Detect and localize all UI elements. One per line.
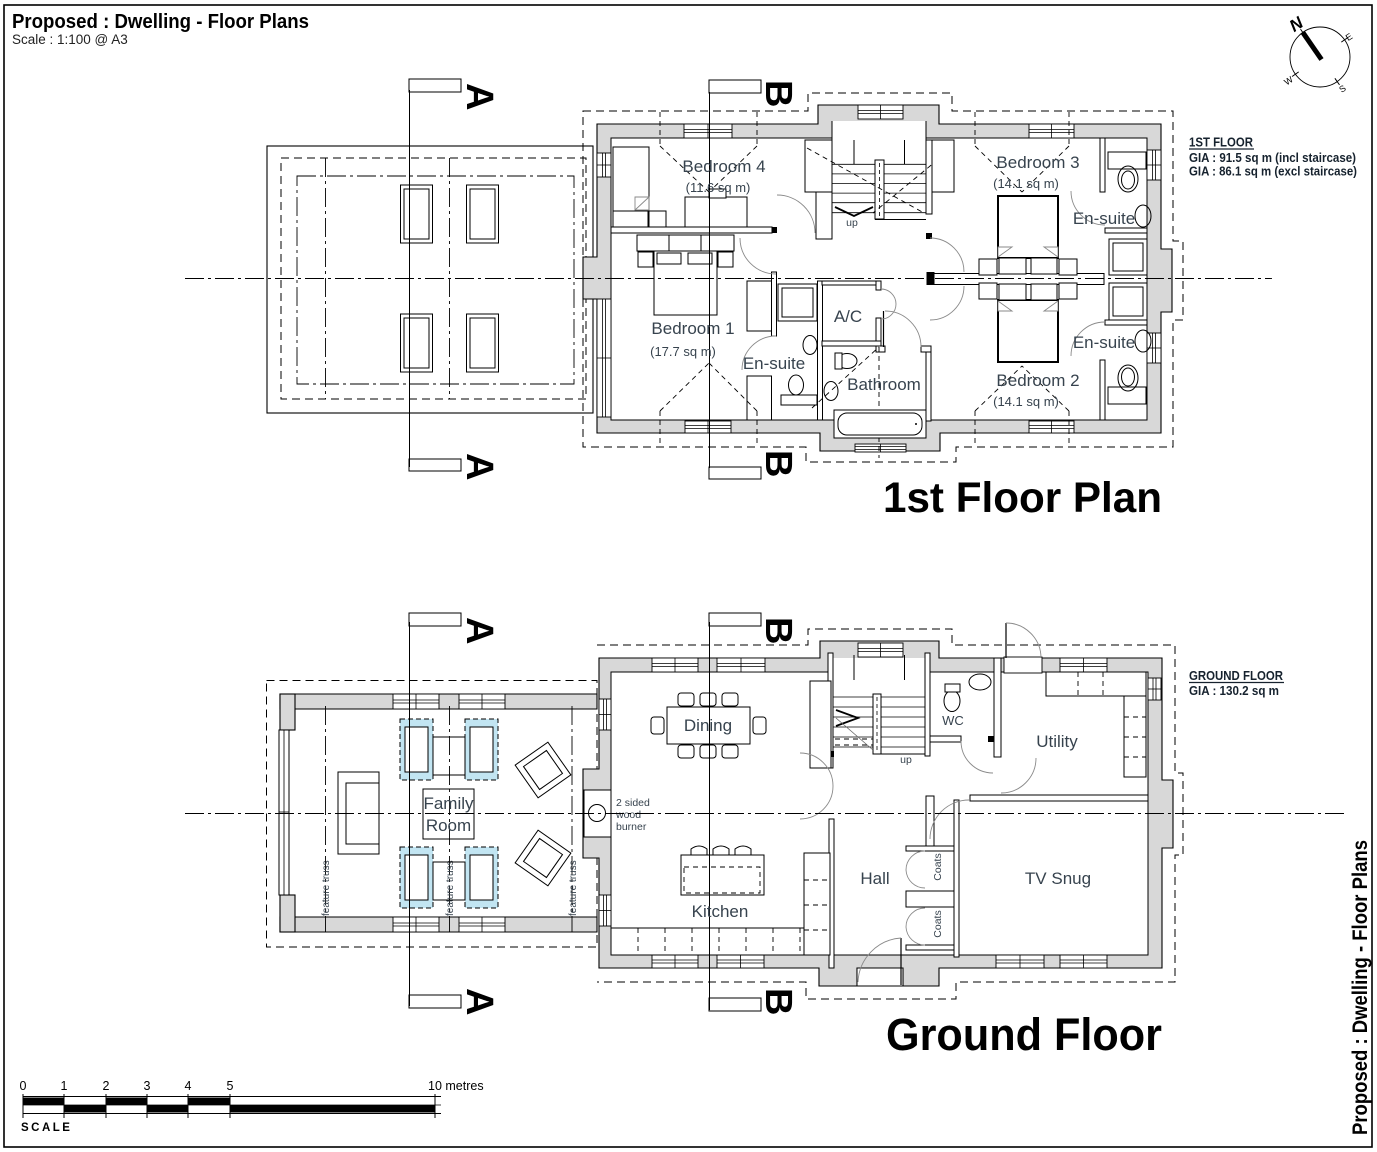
svg-text:Bedroom 4: Bedroom 4 xyxy=(682,157,765,176)
svg-text:burner: burner xyxy=(616,821,647,833)
svg-text:Coats: Coats xyxy=(932,910,944,937)
svg-text:B: B xyxy=(757,988,799,1015)
svg-text:B: B xyxy=(757,617,799,644)
svg-text:A: A xyxy=(458,453,500,480)
svg-text:A: A xyxy=(458,988,500,1015)
svg-text:En-suite: En-suite xyxy=(1073,333,1135,352)
svg-text:B: B xyxy=(757,450,799,477)
svg-text:1st Floor Plan: 1st Floor Plan xyxy=(883,474,1162,522)
svg-text:5: 5 xyxy=(227,1079,234,1093)
svg-text:Family: Family xyxy=(423,794,474,813)
svg-text:Bathroom: Bathroom xyxy=(847,375,921,394)
svg-text:WC: WC xyxy=(942,713,964,728)
svg-text:10 metres: 10 metres xyxy=(428,1079,484,1093)
svg-text:3: 3 xyxy=(144,1079,151,1093)
svg-text:En-suite: En-suite xyxy=(743,354,805,373)
svg-text:1: 1 xyxy=(61,1079,68,1093)
svg-text:Bedroom 1: Bedroom 1 xyxy=(651,319,734,338)
svg-text:Hall: Hall xyxy=(860,869,889,888)
svg-text:4: 4 xyxy=(185,1079,192,1093)
svg-text:Dining: Dining xyxy=(684,716,732,735)
svg-text:Ground Floor: Ground Floor xyxy=(886,1009,1162,1060)
svg-text:2 sided: 2 sided xyxy=(616,797,650,809)
svg-text:1ST FLOOR: 1ST FLOOR xyxy=(1189,135,1254,150)
svg-text:2: 2 xyxy=(103,1079,110,1093)
svg-text:TV Snug: TV Snug xyxy=(1025,869,1091,888)
svg-text:Proposed : Dwelling - Floor Pl: Proposed : Dwelling - Floor Plans xyxy=(1348,840,1372,1135)
svg-text:Scale : 1:100 @ A3: Scale : 1:100 @ A3 xyxy=(12,32,128,47)
svg-text:up: up xyxy=(846,217,858,229)
svg-text:Kitchen: Kitchen xyxy=(692,902,749,921)
svg-text:B: B xyxy=(757,80,799,107)
svg-text:A: A xyxy=(458,617,500,644)
svg-text:(17.7 sq m): (17.7 sq m) xyxy=(650,344,716,359)
svg-text:feature truss: feature truss xyxy=(568,860,579,916)
svg-text:feature truss: feature truss xyxy=(321,860,332,916)
svg-text:A: A xyxy=(458,83,500,110)
svg-text:wood: wood xyxy=(615,809,641,821)
svg-text:Bedroom 3: Bedroom 3 xyxy=(996,153,1079,172)
svg-text:Coats: Coats xyxy=(932,853,944,880)
svg-text:GROUND FLOOR: GROUND FLOOR xyxy=(1189,668,1284,683)
svg-text:Proposed : Dwelling - Floor Pl: Proposed : Dwelling - Floor Plans xyxy=(12,11,309,33)
svg-text:GIA : 86.1 sq m (excl staircas: GIA : 86.1 sq m (excl staircase) xyxy=(1189,164,1357,179)
svg-text:(14.1 sq m): (14.1 sq m) xyxy=(993,176,1059,191)
svg-text:(11.6 sq m): (11.6 sq m) xyxy=(686,180,751,195)
svg-text:GIA : 130.2 sq m: GIA : 130.2 sq m xyxy=(1189,683,1279,698)
svg-text:Utility: Utility xyxy=(1036,732,1078,751)
svg-text:Room: Room xyxy=(426,816,471,835)
svg-text:feature truss: feature truss xyxy=(445,860,456,916)
svg-text:SCALE: SCALE xyxy=(21,1122,72,1134)
svg-text:0: 0 xyxy=(20,1079,27,1093)
svg-text:Bedroom 2: Bedroom 2 xyxy=(996,371,1079,390)
svg-text:(14.1 sq m): (14.1 sq m) xyxy=(993,394,1059,409)
svg-text:En-suite: En-suite xyxy=(1073,209,1135,228)
svg-text:up: up xyxy=(900,754,912,766)
svg-text:A/C: A/C xyxy=(834,307,862,326)
